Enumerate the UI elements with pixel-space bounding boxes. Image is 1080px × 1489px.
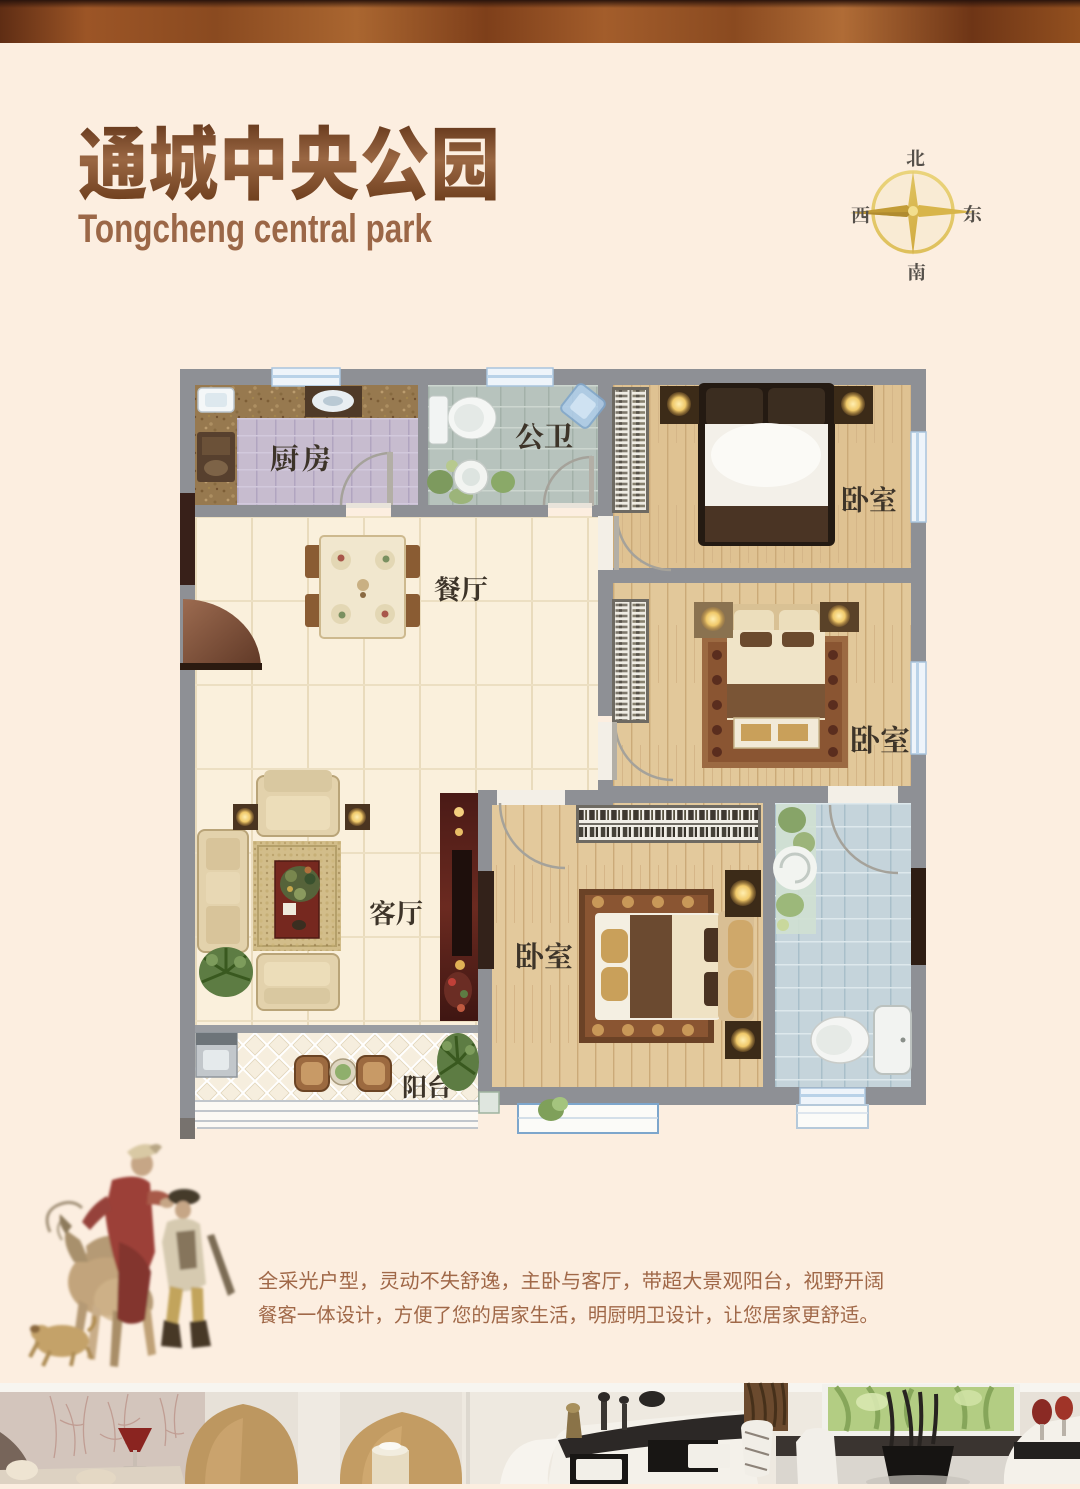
svg-text:Tongcheng central park: Tongcheng central park: [78, 207, 433, 251]
